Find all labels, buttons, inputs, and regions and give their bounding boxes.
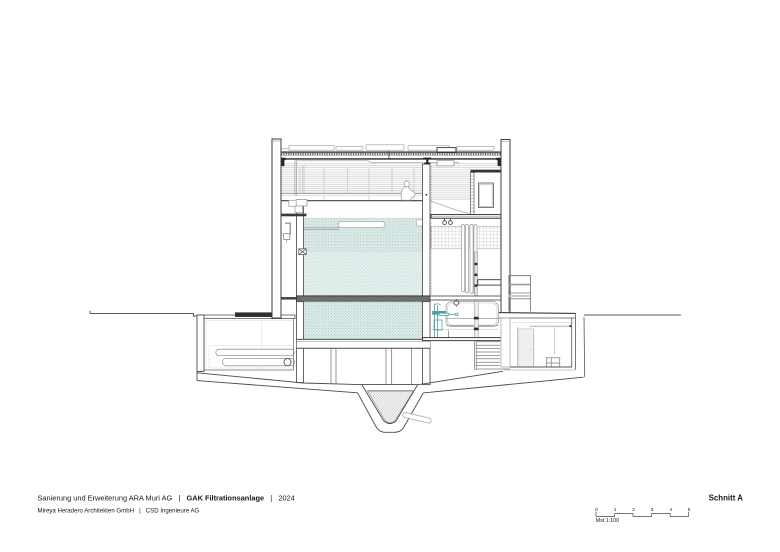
svg-text:3: 3: [651, 507, 654, 513]
svg-text:Sanierung und Erweiterung ARA: Sanierung und Erweiterung ARA Muri AG | …: [38, 493, 295, 502]
svg-text:1: 1: [614, 507, 617, 513]
svg-text:4: 4: [669, 507, 672, 513]
svg-text:Mireya Heradero Architekten Gm: Mireya Heradero Architekten GmbH | CSD I…: [38, 508, 200, 515]
svg-text:0: 0: [595, 507, 598, 513]
svg-text:2: 2: [632, 507, 635, 513]
svg-text:Mst 1:100: Mst 1:100: [596, 518, 619, 524]
svg-text:5: 5: [688, 507, 691, 513]
svg-text:Schnitt A: Schnitt A: [709, 493, 744, 502]
